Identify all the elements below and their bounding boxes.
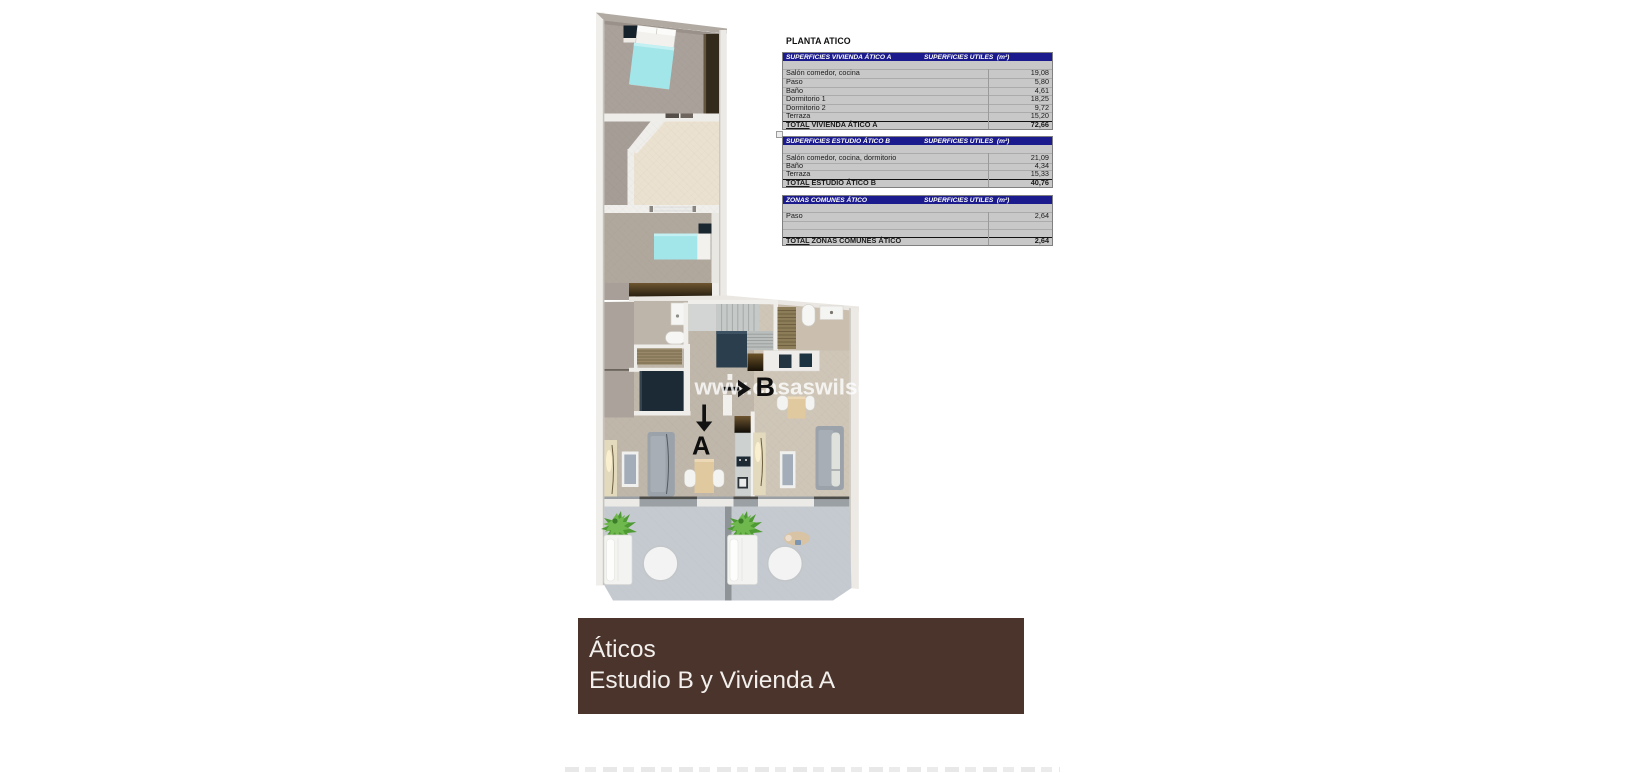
svg-text:B: B bbox=[756, 372, 776, 402]
svg-text:A: A bbox=[692, 433, 710, 461]
svg-text:www.casaswilson: www.casaswilson bbox=[694, 375, 886, 400]
